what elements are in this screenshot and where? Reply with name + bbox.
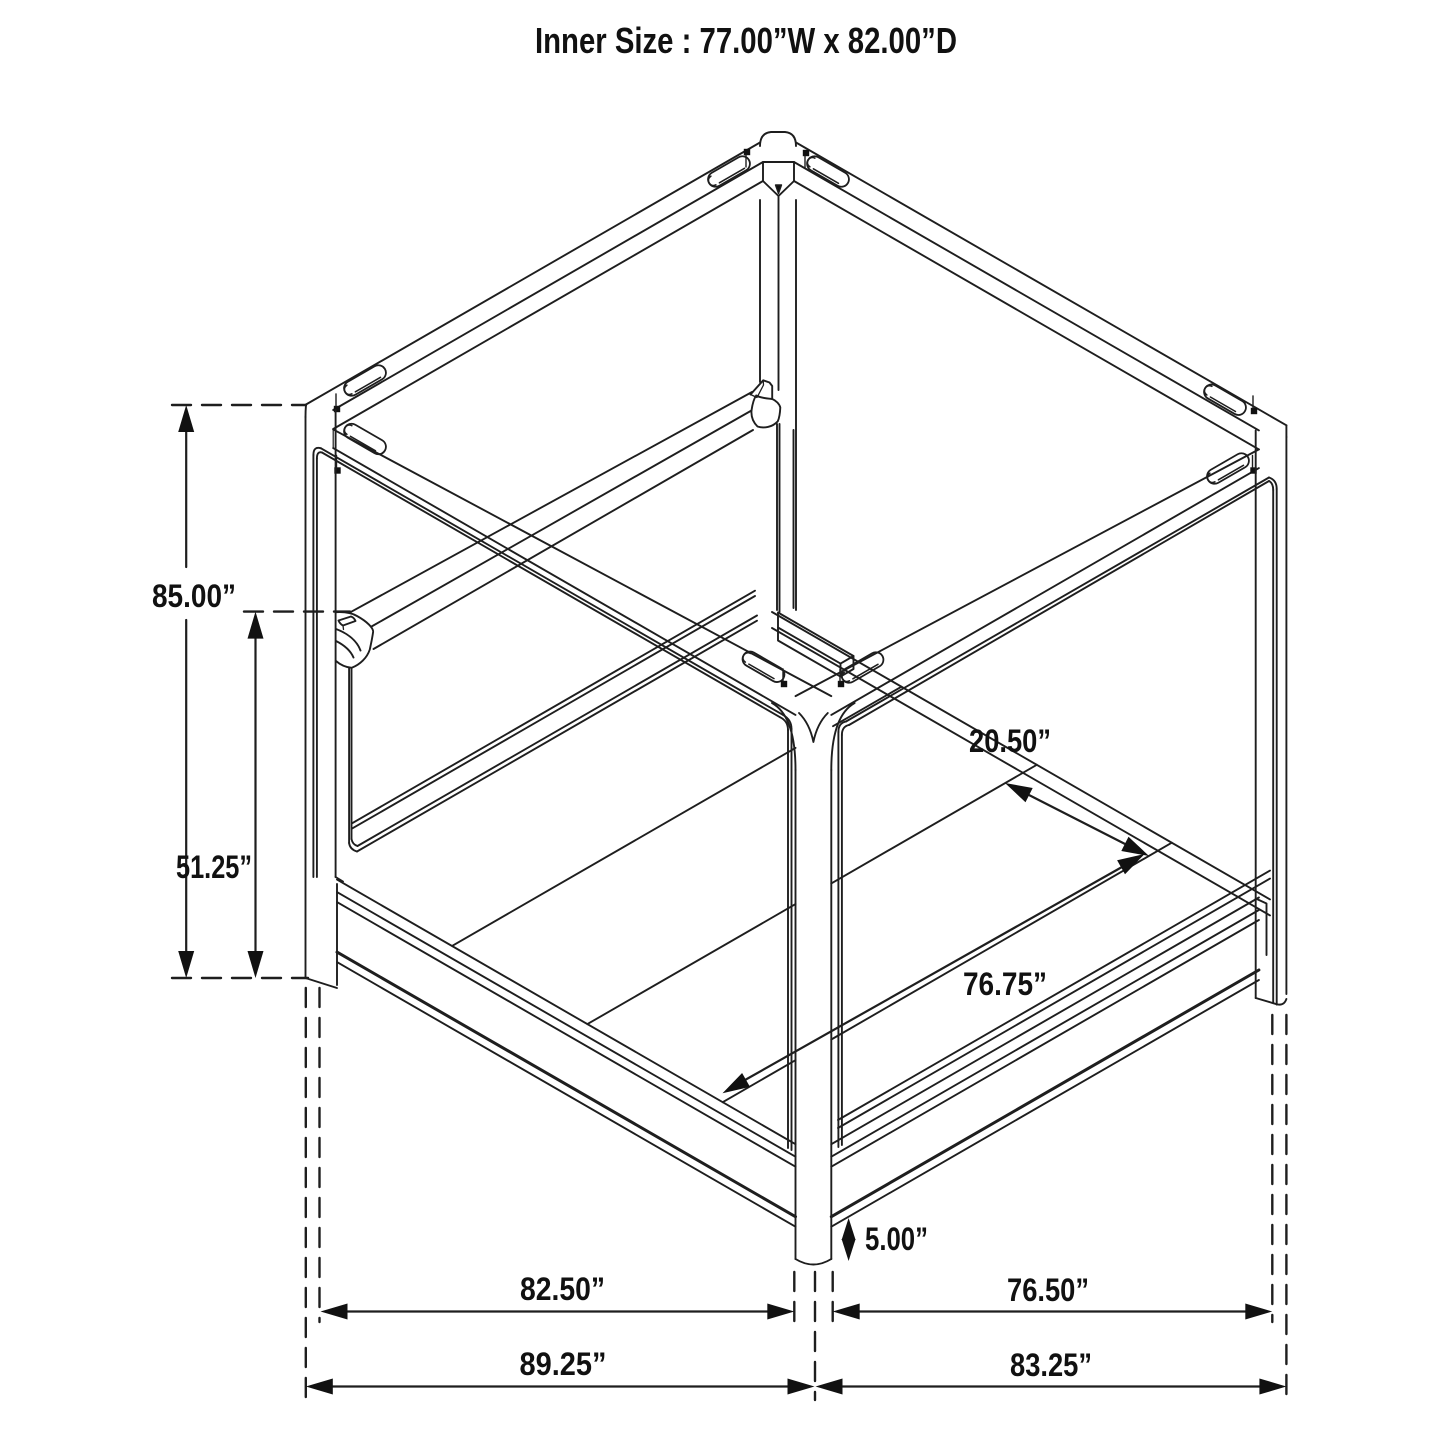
svg-text:85.00”: 85.00” xyxy=(152,578,236,614)
svg-text:51.25”: 51.25” xyxy=(176,849,252,885)
svg-text:82.50”: 82.50” xyxy=(520,1271,605,1307)
svg-text:76.75”: 76.75” xyxy=(963,966,1047,1002)
svg-text:5.00”: 5.00” xyxy=(865,1221,928,1257)
svg-text:89.25”: 89.25” xyxy=(520,1346,607,1382)
svg-text:83.25”: 83.25” xyxy=(1010,1347,1092,1383)
svg-text:20.50”: 20.50” xyxy=(969,723,1051,759)
svg-text:Inner Size : 77.00”W x 82.00”D: Inner Size : 77.00”W x 82.00”D xyxy=(535,20,957,61)
svg-text:76.50”: 76.50” xyxy=(1007,1272,1089,1308)
